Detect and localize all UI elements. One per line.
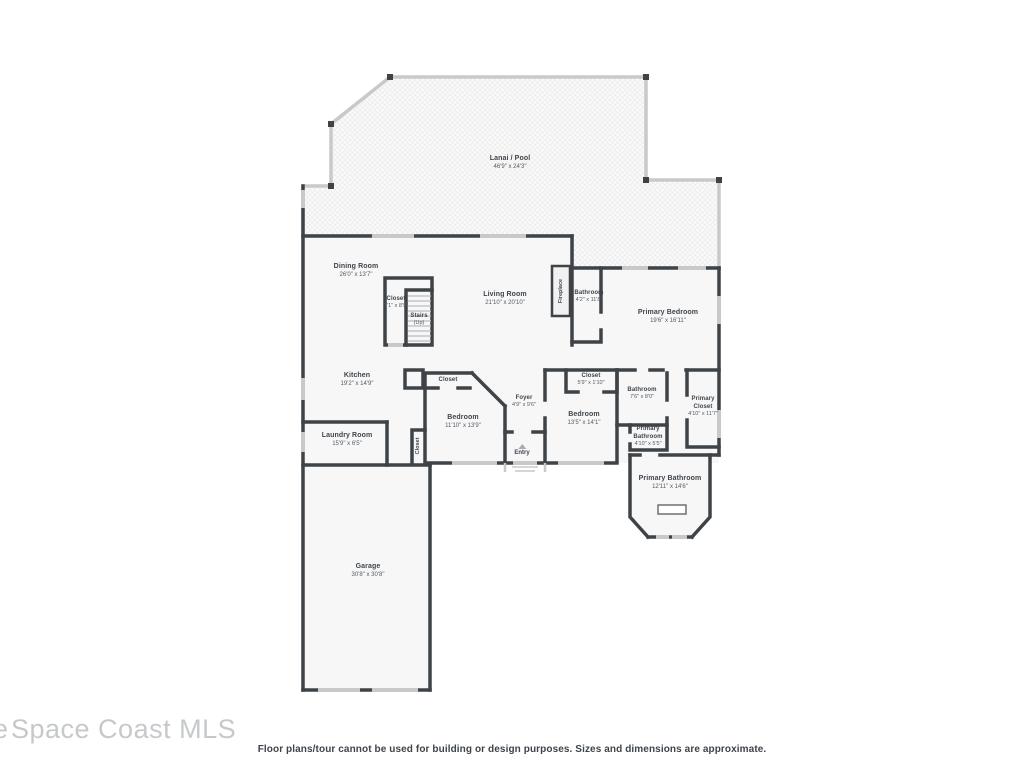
room-label-entry: Entry	[514, 444, 529, 456]
disclaimer-text: Floor plans/tour cannot be used for buil…	[0, 744, 1024, 755]
mls-watermark: Space Coast MLS	[11, 714, 236, 745]
watermark-partial-glyph: e	[0, 714, 8, 745]
floorplan-page: Lanai / Pool 46'9" x 24'3" Dining Room 2…	[0, 0, 1024, 768]
bathtub	[658, 505, 686, 514]
entry-arrow-icon	[518, 444, 526, 449]
fireplace-box	[552, 266, 570, 316]
floorplan-drawing	[0, 0, 1024, 768]
